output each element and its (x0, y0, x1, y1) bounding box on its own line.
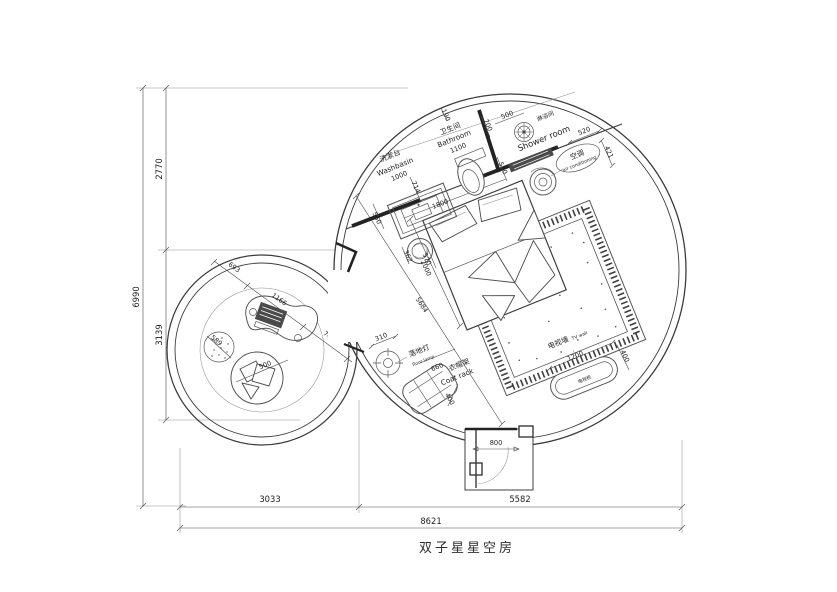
floorplan-page: 6990 2770 3139 3033 5582 8621 (0, 0, 837, 592)
floorplan-canvas: 6990 2770 3139 3033 5582 8621 (0, 0, 837, 592)
dim-310: 310 (374, 331, 389, 343)
dim-421: 421 (603, 145, 616, 160)
toilet (453, 148, 489, 199)
coat-rack: 660 衣帽架 Coat rack 400 (399, 349, 476, 417)
passage (328, 243, 364, 352)
tv-cabinet: 电视柜 (547, 353, 622, 403)
dim-3033: 3033 (259, 494, 280, 504)
label-shower-cn: 淋浴间 (535, 109, 555, 123)
dim-1800: 1800 (431, 197, 450, 210)
dim-5684: 5684 (414, 296, 430, 314)
ac-unit (530, 168, 556, 195)
door-post (519, 426, 533, 437)
dim-800: 800 (490, 439, 503, 447)
dotted-pouf: 589 (204, 332, 234, 362)
dim-6990: 6990 (131, 286, 141, 307)
dim-190: 190 (440, 108, 453, 123)
dim-520: 520 (577, 125, 592, 137)
dim-5582: 5582 (509, 494, 530, 504)
dim-589: 589 (209, 333, 224, 347)
dim-3139: 3139 (154, 324, 164, 345)
outer-dimensions: 6990 2770 3139 3033 5582 8621 (131, 85, 685, 533)
dim-700: 700 (482, 118, 495, 133)
dim-2770: 2770 (154, 158, 164, 179)
label-tv-wall-cn: 电视墙 (546, 334, 569, 350)
dim-500-shower: 500 (500, 109, 515, 121)
round-seat: 500 (231, 352, 288, 404)
label-tv-wall-en: TV wall (570, 330, 589, 342)
dim-8621: 8621 (420, 516, 441, 526)
entrance: 800 (465, 426, 533, 490)
drawing-title: 双子星星空房 (419, 540, 515, 556)
ac-label: 空调 air conditioning (551, 138, 604, 177)
dim-400-tv: 400 (619, 349, 632, 364)
dim-590: 590 (497, 161, 510, 176)
